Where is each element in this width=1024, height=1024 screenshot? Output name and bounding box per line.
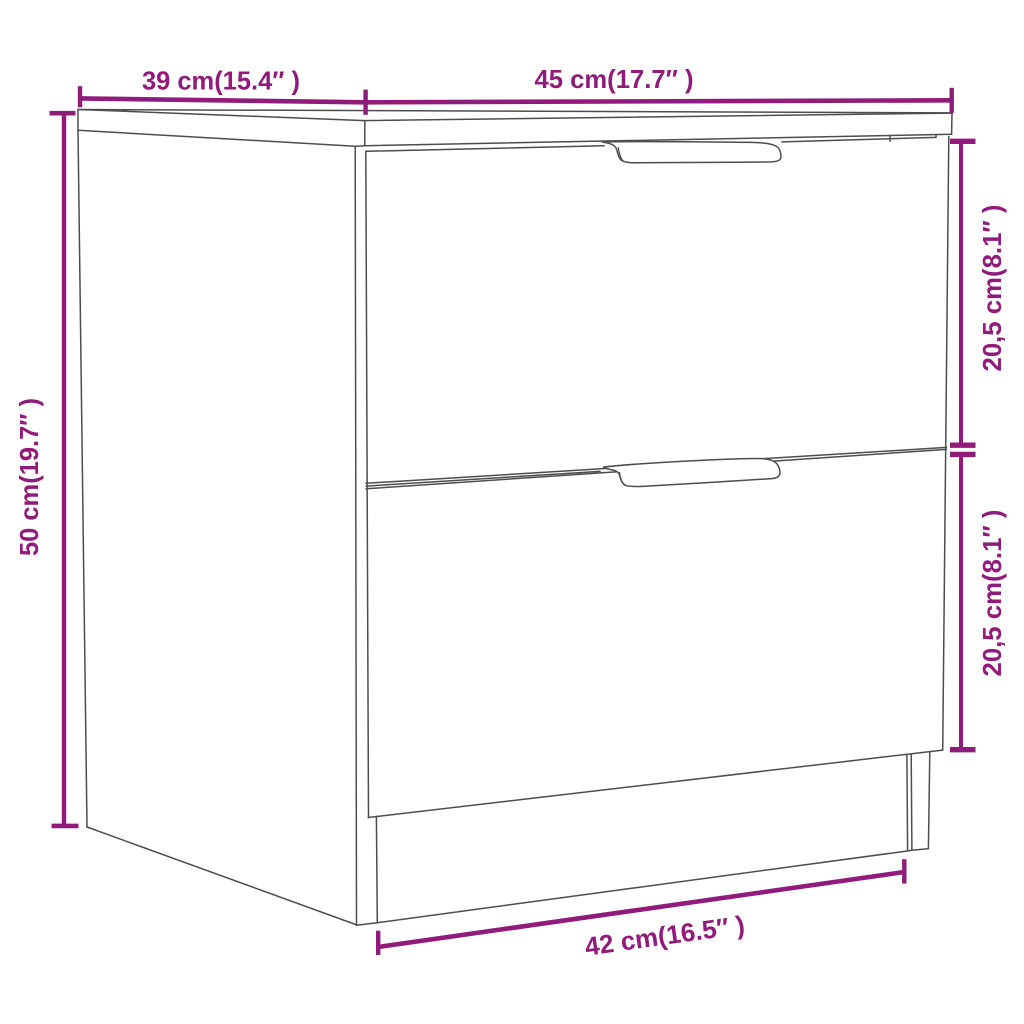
svg-text:45 cm(17.7″ ): 45 cm(17.7″ ) [535, 64, 694, 94]
svg-text:20,5 cm(8.1″ ): 20,5 cm(8.1″ ) [977, 205, 1007, 372]
svg-text:20,5 cm(8.1″ ): 20,5 cm(8.1″ ) [977, 510, 1007, 677]
svg-text:39 cm(15.4″ ): 39 cm(15.4″ ) [142, 65, 300, 95]
svg-text:50 cm(19.7″ ): 50 cm(19.7″ ) [14, 398, 44, 556]
